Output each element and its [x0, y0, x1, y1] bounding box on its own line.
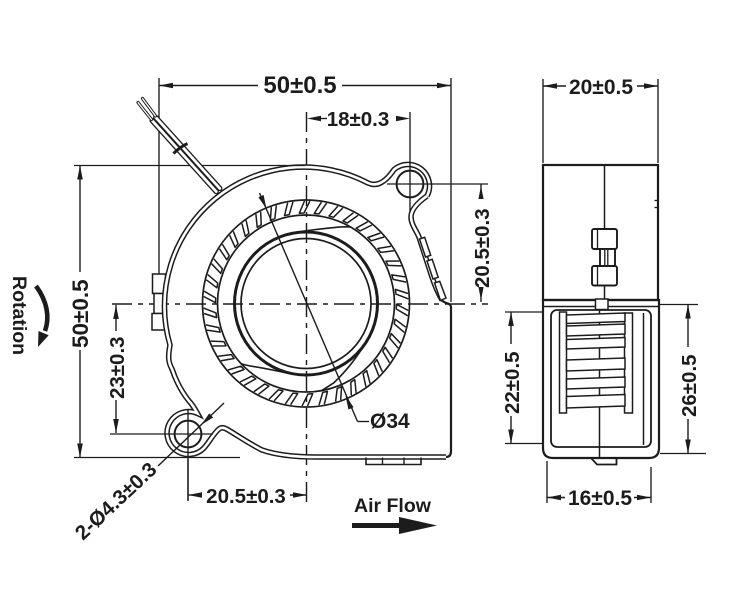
svg-text:23±0.3: 23±0.3: [106, 336, 129, 399]
svg-text:20±0.5: 20±0.5: [569, 76, 633, 99]
svg-text:20.5±0.3: 20.5±0.3: [206, 485, 286, 508]
svg-text:22±0.5: 22±0.5: [501, 351, 524, 414]
svg-text:50±0.5: 50±0.5: [263, 72, 336, 99]
svg-text:18±0.3: 18±0.3: [327, 108, 390, 131]
svg-text:Air Flow: Air Flow: [354, 495, 432, 517]
svg-text:Ø34: Ø34: [370, 410, 410, 433]
svg-text:16±0.5: 16±0.5: [568, 487, 632, 510]
svg-text:Rotation: Rotation: [8, 276, 30, 355]
svg-text:20.5±0.3: 20.5±0.3: [471, 208, 494, 288]
svg-text:50±0.5: 50±0.5: [68, 279, 93, 348]
svg-text:26±0.5: 26±0.5: [678, 354, 701, 417]
